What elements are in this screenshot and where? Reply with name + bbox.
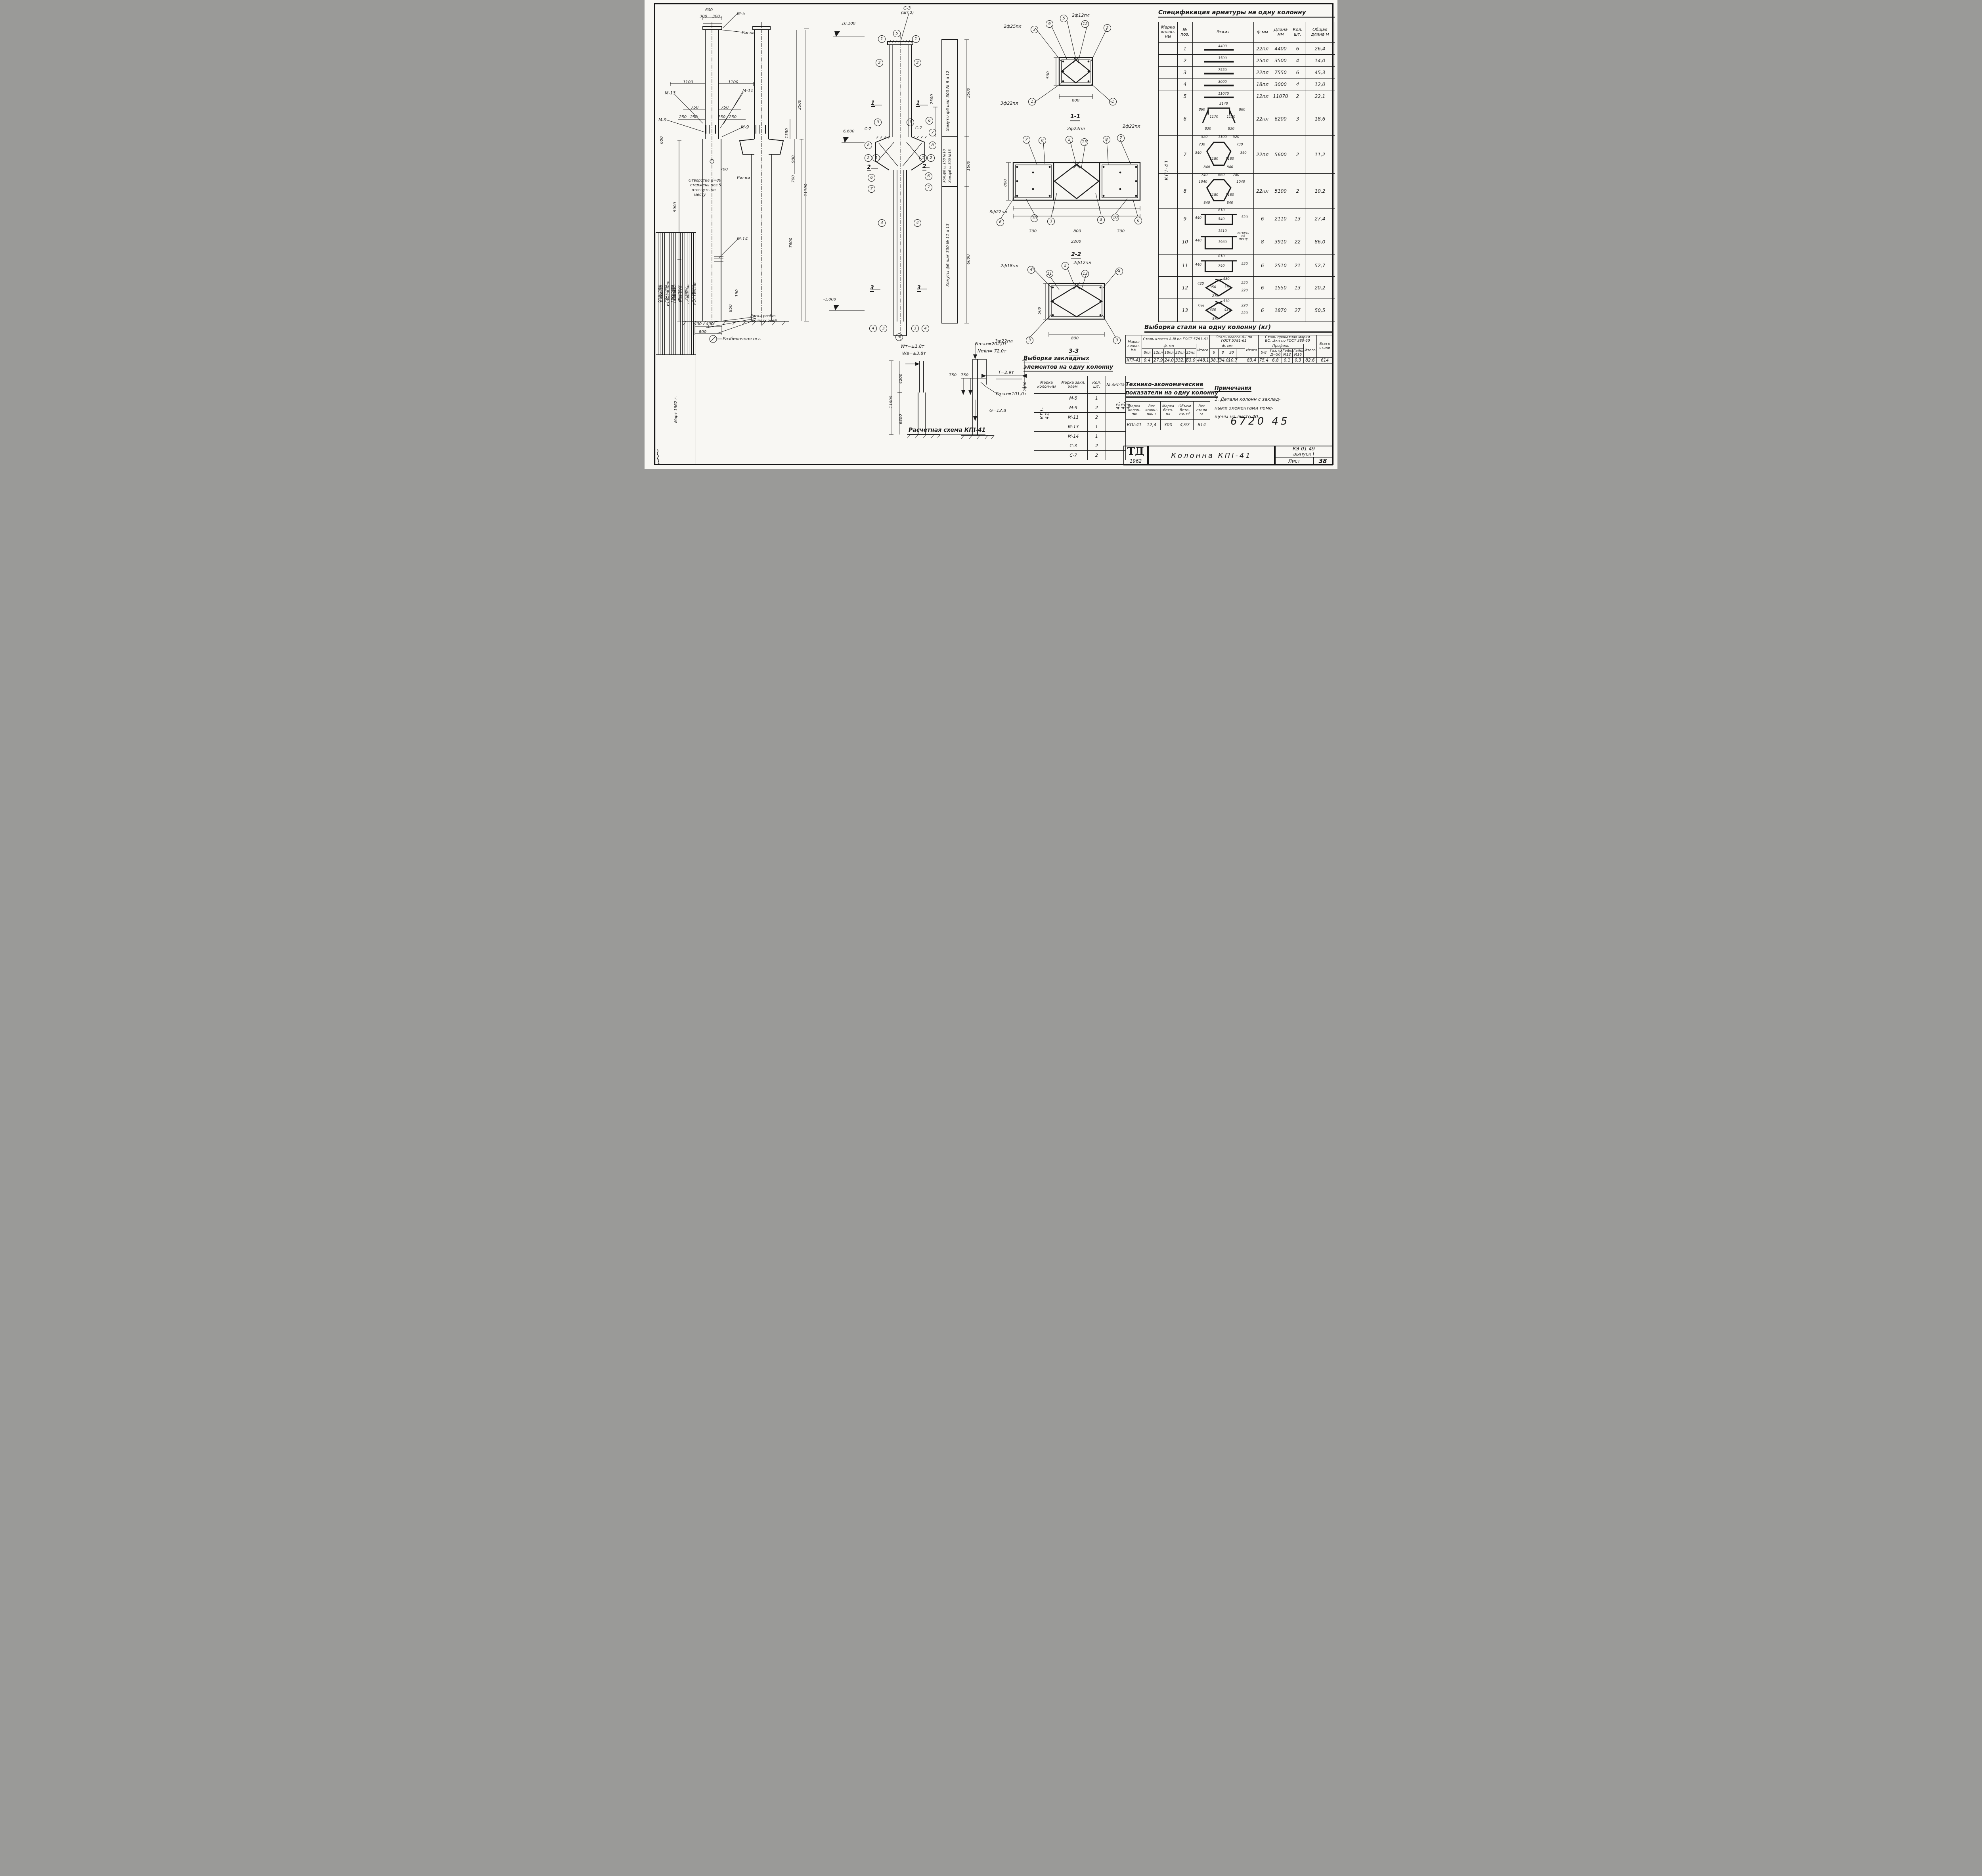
embed-col-sheet: № лис-та xyxy=(1106,376,1125,394)
spec-sketch: 610440540520 xyxy=(1192,209,1254,229)
spec-mark-cell xyxy=(1159,299,1178,322)
sketch-dim-label: 1180 xyxy=(1210,193,1219,197)
rebar-callout: 2 xyxy=(1104,24,1111,32)
spec-total: 18,6 xyxy=(1305,102,1335,136)
sketch-dim-label: 740 xyxy=(1201,174,1207,177)
stamp-date: Март 1962 г. xyxy=(656,355,696,465)
rebar-callout: 8 xyxy=(1103,136,1110,144)
section-caption: 2-2 xyxy=(1071,252,1081,259)
sketch-dim-label: 440 xyxy=(1195,263,1201,267)
rebar-callout: 8 xyxy=(929,142,936,149)
drawing-label: 300 xyxy=(712,15,720,19)
spec-pos: 4 xyxy=(1178,78,1193,90)
rebar-callout: 5 xyxy=(893,30,901,37)
stamp-rotated: Кузнецов Инженер Радугина Исполнитель xyxy=(656,232,696,465)
rebar-callout: 7 xyxy=(925,184,932,191)
rebar-callout: 3 xyxy=(874,119,882,126)
sketch-dim-label: 1170 xyxy=(1210,115,1219,119)
rebar-callout: 3 xyxy=(1047,218,1055,225)
rebar-callout: 2 xyxy=(914,59,921,67)
sketch-dim-label: 270 xyxy=(1212,295,1219,298)
embed-el: М-14 xyxy=(1059,432,1088,441)
drawing-label: Wв=±3,8т xyxy=(902,351,926,356)
section-caption: 1-1 xyxy=(1070,114,1080,121)
sketch-dim-label: 520 xyxy=(1233,136,1239,139)
spec-sketch: 3500 xyxy=(1192,55,1254,67)
steel-g2-c3 xyxy=(1236,349,1245,358)
steel-g3-c0: δ-8 xyxy=(1258,349,1269,358)
embed-column-mark: КПI-41 xyxy=(1039,407,1050,419)
spec-total: 12,0 xyxy=(1305,78,1335,90)
series-issue: выпуск I xyxy=(1293,452,1314,457)
drawing-label: 10,100 xyxy=(842,22,855,26)
tech-values-row: КПI-4112,43004,97614 xyxy=(1126,420,1210,430)
spec-qty: 13 xyxy=(1290,277,1305,299)
embed-row: М-14 1 xyxy=(1034,432,1126,441)
sketch-dim-label: 740 xyxy=(1218,264,1224,268)
drawing-label: 800 xyxy=(1073,230,1081,234)
spec-dia: 6 xyxy=(1254,255,1271,277)
embed-col-qty: Кол. шт. xyxy=(1088,376,1106,394)
drawing-label: 2ф12пл xyxy=(1073,260,1091,265)
drawing-label: 250 xyxy=(690,115,698,119)
embed-row: М-13 1 xyxy=(1034,422,1126,432)
steel-value: 24,0 xyxy=(1163,358,1174,364)
spec-total: 26,4 xyxy=(1305,43,1335,55)
spec-pos: 6 xyxy=(1178,102,1193,136)
rebar-callout: 8 xyxy=(1039,137,1046,144)
sketch-dim-label: загнуть по месту xyxy=(1236,232,1250,241)
embed-mark-slot xyxy=(1034,394,1059,403)
rebar-sketch-diamond xyxy=(1198,278,1240,297)
spec-length: 3910 xyxy=(1271,229,1290,255)
rebar-callout: 4 xyxy=(922,325,929,332)
spec-qty: 2 xyxy=(1290,136,1305,174)
spec-length: 11070 xyxy=(1271,90,1290,102)
spec-qty: 6 xyxy=(1290,43,1305,55)
drawing-label: Хомуты ф6 шаг 300 № 9 и 12 xyxy=(946,71,950,131)
sketch-dim-label: 220 xyxy=(1242,312,1248,315)
spec-pos: 5 xyxy=(1178,90,1193,102)
spec-qty: 22 xyxy=(1290,229,1305,255)
drawing-label: 500 xyxy=(1046,71,1050,79)
drawing-label: Pmax=101,0т xyxy=(996,392,1027,396)
embed-mark-slot xyxy=(1034,451,1059,460)
rebar-callout: 1 xyxy=(1028,98,1036,105)
drawing-label: Отверстие d=80 xyxy=(689,179,721,183)
drawing-label: 2ф25пл xyxy=(1004,24,1022,29)
sketch-dim-label: 540 xyxy=(1218,218,1224,221)
sketch-dim-label: 610 xyxy=(1218,209,1224,212)
spec-sketch: 520110052073073034034011801180840840 xyxy=(1192,136,1254,174)
sketch-dim-label: 4400 xyxy=(1218,45,1227,48)
drawing-label: 3ф22пл xyxy=(1001,101,1018,105)
sketch-dim-label: 7550 xyxy=(1218,69,1227,72)
drawing-label: С-7 xyxy=(915,126,922,130)
spec-row: 1 4400 22пл 4400 6 26,4 xyxy=(1159,43,1335,55)
spec-dia: 22пл xyxy=(1254,43,1271,55)
sheet-label: Лист xyxy=(1276,458,1314,465)
spec-total: 45,3 xyxy=(1305,67,1335,78)
spec-row: 8 7406607401040104011801180840840 22пл 5… xyxy=(1159,174,1335,209)
steel-g2-c2: 20 xyxy=(1227,349,1236,358)
steel-g1-c4: 25пл xyxy=(1185,349,1196,358)
embed-sheet-slot xyxy=(1106,422,1125,432)
spec-dia: 8 xyxy=(1254,229,1271,255)
sketch-dim-label: 220 xyxy=(1242,289,1248,293)
section-caption: 1 xyxy=(871,100,875,107)
rebar-callout: 3 xyxy=(1113,337,1121,344)
sketch-dim-label: 1960 xyxy=(1218,241,1227,244)
spec-mark-cell xyxy=(1159,229,1178,255)
spec-total: 27,4 xyxy=(1305,209,1335,229)
drawing-label: 6,600 xyxy=(843,130,855,134)
drawing-label: 190 xyxy=(735,289,739,297)
embed-qty: 1 xyxy=(1088,432,1106,441)
spec-length: 6200 xyxy=(1271,102,1290,136)
drawing-label: Риски xyxy=(737,176,750,180)
steel-value: 38,7 xyxy=(1209,358,1218,364)
steel-g2-sub: ф, мм xyxy=(1209,344,1245,348)
sketch-dim-label: 730 xyxy=(1199,143,1205,147)
spec-sketch: 420430350350270220220 xyxy=(1192,277,1254,299)
drawing-label: 700 xyxy=(1117,230,1125,234)
spec-mark-cell xyxy=(1159,102,1178,136)
sketch-dim-label: 1100 xyxy=(1218,136,1227,139)
spec-mark-cell xyxy=(1159,209,1178,229)
steel-value: 9,4 xyxy=(1142,358,1152,364)
steel-value: 27,9 xyxy=(1153,358,1163,364)
tech-header: Объем бето-на, м³ xyxy=(1176,402,1194,420)
drawing-label: 5900 xyxy=(673,202,677,212)
embed-row: С-3 2 xyxy=(1034,441,1126,451)
steel-g1-sub: ф, мм xyxy=(1142,344,1196,348)
spec-qty: 4 xyxy=(1290,78,1305,90)
spec-sketch: 500510430430370220220 xyxy=(1192,299,1254,322)
steel-value: 332,9 xyxy=(1175,358,1185,364)
drawing-label: М-14 xyxy=(737,237,748,241)
section-caption: 2 xyxy=(867,165,871,171)
drawing-label: 750 xyxy=(691,106,698,110)
rebar-callout: 5 xyxy=(1062,262,1069,270)
spec-qty: 3 xyxy=(1290,102,1305,136)
steel-g1-c1: 12пл xyxy=(1153,349,1163,358)
spec-pos: 3 xyxy=(1178,67,1193,78)
rebar-callout: 13 xyxy=(1081,138,1088,146)
rebar-callout: 2 xyxy=(1031,26,1038,33)
sketch-dim-label: 440 xyxy=(1195,239,1201,243)
sketch-dim-label: 840 xyxy=(1227,201,1233,205)
drawing-label: 800 xyxy=(1071,337,1079,341)
rebar-callout: 7 xyxy=(1023,136,1030,144)
embed-mark-slot xyxy=(1034,422,1059,432)
rebar-callout: 3 xyxy=(1097,216,1105,224)
drawing-label: 850 xyxy=(729,304,733,312)
spec-table-title: Спецификация арматуры на одну колонну xyxy=(1158,9,1335,18)
steel-g3-itogo: Итого xyxy=(1303,344,1317,357)
sheet-number: 38 xyxy=(1314,458,1332,465)
tech-title-1: Технико-экономические xyxy=(1125,381,1203,389)
steel-g3-c2: Гайка М12 xyxy=(1282,349,1292,358)
spec-mark-cell xyxy=(1159,43,1178,55)
sketch-dim-label: 1170 xyxy=(1227,115,1236,119)
cross-sections: 2ф25пл2952ф12пл1223ф22пл115006001-12ф22п… xyxy=(989,6,1160,363)
spec-table-block: Спецификация арматуры на одну колонну Ма… xyxy=(1158,9,1335,322)
sketch-dim-label: 840 xyxy=(1203,201,1210,205)
drawing-label: 600 xyxy=(1072,99,1079,103)
spec-mark-cell xyxy=(1159,67,1178,78)
tech-value: 614 xyxy=(1194,420,1210,430)
rebar-callout: 8 xyxy=(865,142,872,149)
stamp-groups: Кузнецов Инженер Радугина Исполнитель xyxy=(656,233,696,355)
sketch-dim-label: 1040 xyxy=(1236,180,1245,184)
spec-row: 4 3000 18пл 3000 4 12,0 xyxy=(1159,78,1335,90)
rebar-callout: 5 xyxy=(1060,15,1068,22)
drawing-label: 1100 xyxy=(728,80,738,84)
drawing-label: 600 xyxy=(705,8,713,12)
rebar-callout: 6 xyxy=(926,117,933,124)
spec-table: Марка колон-ны № поз. Эскиз ф мм Длина м… xyxy=(1158,22,1335,322)
rebar-callout: 3 xyxy=(880,325,887,332)
steel-g1-c2: 18пл xyxy=(1163,349,1174,358)
drawing-label: 2ф12пл xyxy=(1072,13,1090,17)
sketch-dim-label: 500 xyxy=(1198,305,1204,308)
rebar-callout: 10 xyxy=(1112,214,1119,221)
drawing-label: 3ф22пл xyxy=(989,210,1007,214)
drawing-label: М-5 xyxy=(737,11,745,16)
spec-total: 11,2 xyxy=(1305,136,1335,174)
section-caption: 3 xyxy=(917,285,921,292)
drawing-label: М-13 xyxy=(665,91,675,95)
rebar-callout: 4 xyxy=(1115,268,1123,275)
drawing-label: 2800 xyxy=(1024,382,1027,392)
rebar-callout: 12 xyxy=(1081,20,1089,28)
sketch-dim-label: 1510 xyxy=(1218,230,1227,233)
embed-row: С-7 2 xyxy=(1034,451,1126,460)
steel-table-title: Выборка стали на одну колонну (кг) xyxy=(1144,324,1333,333)
embed-row: М-5 1 xyxy=(1034,394,1126,403)
sketch-dim-label: 220 xyxy=(1242,281,1248,285)
steel-value: 448,1 xyxy=(1196,358,1209,364)
drawing-label: 6000 xyxy=(967,255,971,264)
spec-table-body: 1 4400 22пл 4400 6 26,4 2 3500 25пл 3500 xyxy=(1159,43,1335,322)
spec-row: 10 15104401960загнуть по месту 8 3910 22… xyxy=(1159,229,1335,255)
sketch-dim-label: 430 xyxy=(1210,308,1216,312)
sketch-dim-label: 830 xyxy=(1228,127,1234,131)
spec-row: 3 7550 22пл 7550 6 45,3 xyxy=(1159,67,1335,78)
spec-length: 3000 xyxy=(1271,78,1290,90)
sketch-dim-label: 860 xyxy=(1239,108,1245,112)
embed-col-mark: Марка колон-ны xyxy=(1034,376,1059,394)
drawing-label: 3500 xyxy=(967,88,971,98)
steel-value: 6,8 xyxy=(1269,358,1282,364)
spec-sketch: 7550 xyxy=(1192,67,1254,78)
spec-dia: 6 xyxy=(1254,277,1271,299)
drawing-label: 250 xyxy=(729,115,737,119)
spec-pos: 13 xyxy=(1178,299,1193,322)
rebar-callout: 4 xyxy=(914,219,921,227)
embed-qty: 2 xyxy=(1088,441,1106,451)
drawing-label: Риски xyxy=(742,31,755,35)
embed-sheet-slot xyxy=(1106,451,1125,460)
stamp-role: Рук. группы xyxy=(694,233,696,354)
steel-values-row: КПI-419,427,924,0332,953,9448,138,734,01… xyxy=(1126,358,1333,364)
sketch-dim-label: 730 xyxy=(1236,143,1243,147)
spec-mark-cell xyxy=(1159,90,1178,102)
spec-mark-cell xyxy=(1159,277,1178,299)
drawing-label: отогнуть по xyxy=(692,188,716,192)
rebar-callout: 6 xyxy=(1134,217,1142,224)
tech-header: Марка бето-на xyxy=(1160,402,1176,420)
sketch-dim-label: 520 xyxy=(1242,216,1248,219)
drawing-label: 6800 xyxy=(899,414,903,424)
drawing-label: 800 xyxy=(699,330,706,334)
sketch-dim-label: 520 xyxy=(1201,136,1207,139)
drawing-label: Хомуты ф6 шаг 300 № 11 и 13 xyxy=(946,224,950,287)
drawing-label: Nmin= 72,0т xyxy=(978,349,1006,353)
calc-scheme: Wт=±1,8тWв=±3,8т4200110006800Nmax=202,0т… xyxy=(882,340,1033,439)
rebar-callout: 11 xyxy=(1046,270,1053,278)
spec-row: 5 11070 12пл 11070 2 22,1 xyxy=(1159,90,1335,102)
steel-g1-title: Сталь класса А-III по ГОСТ 5781-61 xyxy=(1142,335,1209,344)
tech-value: 4,97 xyxy=(1176,420,1194,430)
drawing-label: 750 xyxy=(721,106,729,110)
spec-sketch: 15104401960загнуть по месту xyxy=(1192,229,1254,255)
org-logo: ТД 1962 xyxy=(1123,446,1148,465)
spec-sketch: 7406607401040104011801180840840 xyxy=(1192,174,1254,209)
spec-sketch: 810440740520 xyxy=(1192,255,1254,277)
spec-length: 2110 xyxy=(1271,209,1290,229)
embed-el: М-11 xyxy=(1059,413,1088,422)
rebar-callout: 5 xyxy=(1066,136,1073,144)
spec-pos: 8 xyxy=(1178,174,1193,209)
spec-row: 9 610440540520 6 2110 13 27,4 xyxy=(1159,209,1335,229)
drawing-label: 4200 xyxy=(899,374,903,384)
steel-value: 0,1 xyxy=(1282,358,1292,364)
sketch-dim-label: 520 xyxy=(1242,262,1248,266)
note-line: 1. Детали колонн с заклад- xyxy=(1215,395,1294,404)
drawing-label: Хом.ф8 ш.150 №10 xyxy=(943,149,947,183)
section-caption: 1 xyxy=(916,100,920,107)
spec-mark-cell xyxy=(1159,255,1178,277)
spec-total: 14,0 xyxy=(1305,55,1335,67)
drawing-label: (шт.2) xyxy=(901,11,914,15)
drawing-label: 2ф22пл xyxy=(1067,126,1085,131)
sketch-dim-label: 740 xyxy=(1233,174,1239,177)
steel-mark-hdr: Марка колон-ны xyxy=(1126,335,1142,358)
steel-value: 75,4 xyxy=(1258,358,1269,364)
rebar-callout: 4 xyxy=(1027,266,1035,274)
sketch-dim-label: 2140 xyxy=(1219,102,1228,106)
sketch-dim-label: 350 xyxy=(1210,286,1216,289)
sketch-dim-label: 11070 xyxy=(1218,92,1229,96)
drawing-label: Разбивочная ось xyxy=(723,337,761,341)
drawing-label: стержень поз.5 xyxy=(690,184,721,188)
spec-col-length: Длина мм xyxy=(1271,22,1290,43)
spec-pos: 7 xyxy=(1178,136,1193,174)
drawing-label: 7600 xyxy=(789,238,793,248)
drawing-label: 500 xyxy=(1038,307,1042,314)
embed-el: М-5 xyxy=(1059,394,1088,403)
spec-mark-cell xyxy=(1159,55,1178,67)
spec-pos: 11 xyxy=(1178,255,1193,277)
steel-total-hdr: Всего стали xyxy=(1317,335,1333,358)
spec-length: 4400 xyxy=(1271,43,1290,55)
rebar-callout: 7 xyxy=(868,185,875,193)
spec-row: 6 214086086011701170830830 22пл 6200 3 1… xyxy=(1159,102,1335,136)
spec-row: 11 810440740520 6 2510 21 52,7 xyxy=(1159,255,1335,277)
sketch-dim-label: 840 xyxy=(1227,166,1233,169)
rebar-callout: 1 xyxy=(878,35,886,43)
logo-mark: ТД xyxy=(1127,447,1144,456)
drawing-label: вочных осей xyxy=(752,319,777,323)
signature-stamp: Кузнецов Инженер Радугина Исполнитель xyxy=(656,233,695,465)
drawing-label: 300 xyxy=(700,15,707,19)
drawing-label: С-3 xyxy=(903,6,911,10)
steel-g2-title: Сталь класса А-I по ГОСТ 5781-61 xyxy=(1209,335,1258,344)
spec-row: 12 420430350350270220220 6 1550 13 20,2 xyxy=(1159,277,1335,299)
embed-qty: 2 xyxy=(1088,403,1106,413)
drawing-label: 2ф22пл xyxy=(1123,124,1140,128)
drawing-label: 2ф18пл xyxy=(1001,264,1018,268)
rebar-callout: 4 xyxy=(869,325,877,332)
drawing-label: 700 xyxy=(720,168,728,172)
spec-dia: 12пл xyxy=(1254,90,1271,102)
embed-table-body: М-5 1 М-9 2 М-11 2 xyxy=(1034,394,1126,460)
tech-header: Вес стали кг xyxy=(1194,402,1210,420)
rebar-callout: 3 xyxy=(907,119,914,126)
spec-length: 1550 xyxy=(1271,277,1290,299)
drawing-label: -1,000 xyxy=(823,298,836,302)
embed-qty: 2 xyxy=(1088,451,1106,460)
spec-sketch: 11070 xyxy=(1192,90,1254,102)
rebar-callout: 1 xyxy=(912,35,920,43)
spec-pos: 2 xyxy=(1178,55,1193,67)
steel-g3-c3: Гайка М16 xyxy=(1293,349,1303,358)
steel-value: 83,4 xyxy=(1245,358,1259,364)
tech-table: Марка колон-ныВес колон-ны, тМарка бето-… xyxy=(1125,401,1210,430)
drawing-label: 250 xyxy=(718,115,725,119)
spec-qty: 21 xyxy=(1290,255,1305,277)
spec-dia: 18пл xyxy=(1254,78,1271,90)
rebar-callout: 2 xyxy=(927,154,935,162)
rebar-callout: 6 xyxy=(997,218,1004,226)
drawing-label: G=12,8 xyxy=(989,408,1006,413)
drawing-label: 1350 xyxy=(785,128,789,138)
section-caption: 2 xyxy=(922,164,926,170)
embed-title-1: Выборка закладных xyxy=(1024,355,1089,363)
spec-length: 7550 xyxy=(1271,67,1290,78)
drawing-label: 400 xyxy=(706,322,714,326)
embed-sheet-slot xyxy=(1106,432,1125,441)
note-line: ными элементами поме- xyxy=(1215,404,1294,413)
sketch-dim-label: 1040 xyxy=(1199,180,1207,184)
drawing-label: 800 xyxy=(1004,179,1008,187)
spec-row: 2 3500 25пл 3500 4 14,0 xyxy=(1159,55,1335,67)
steel-value: 0,3 xyxy=(1293,358,1303,364)
embed-sheet-slot xyxy=(1106,413,1125,422)
drawing-label: 250 xyxy=(679,115,687,119)
rebar-callout: 1 xyxy=(872,154,880,162)
spec-total: 52,7 xyxy=(1305,255,1335,277)
sketch-dim-label: 830 xyxy=(1205,127,1211,131)
sections-linework xyxy=(989,6,1160,363)
embed-col-el: Марка закл. элем. xyxy=(1059,376,1088,394)
spec-dia: 22пл xyxy=(1254,136,1271,174)
rebar-callout: 4 xyxy=(878,219,886,227)
drawing-label: М-9 xyxy=(741,125,749,129)
drawing-label: Nmax=202,0т xyxy=(975,342,1006,346)
